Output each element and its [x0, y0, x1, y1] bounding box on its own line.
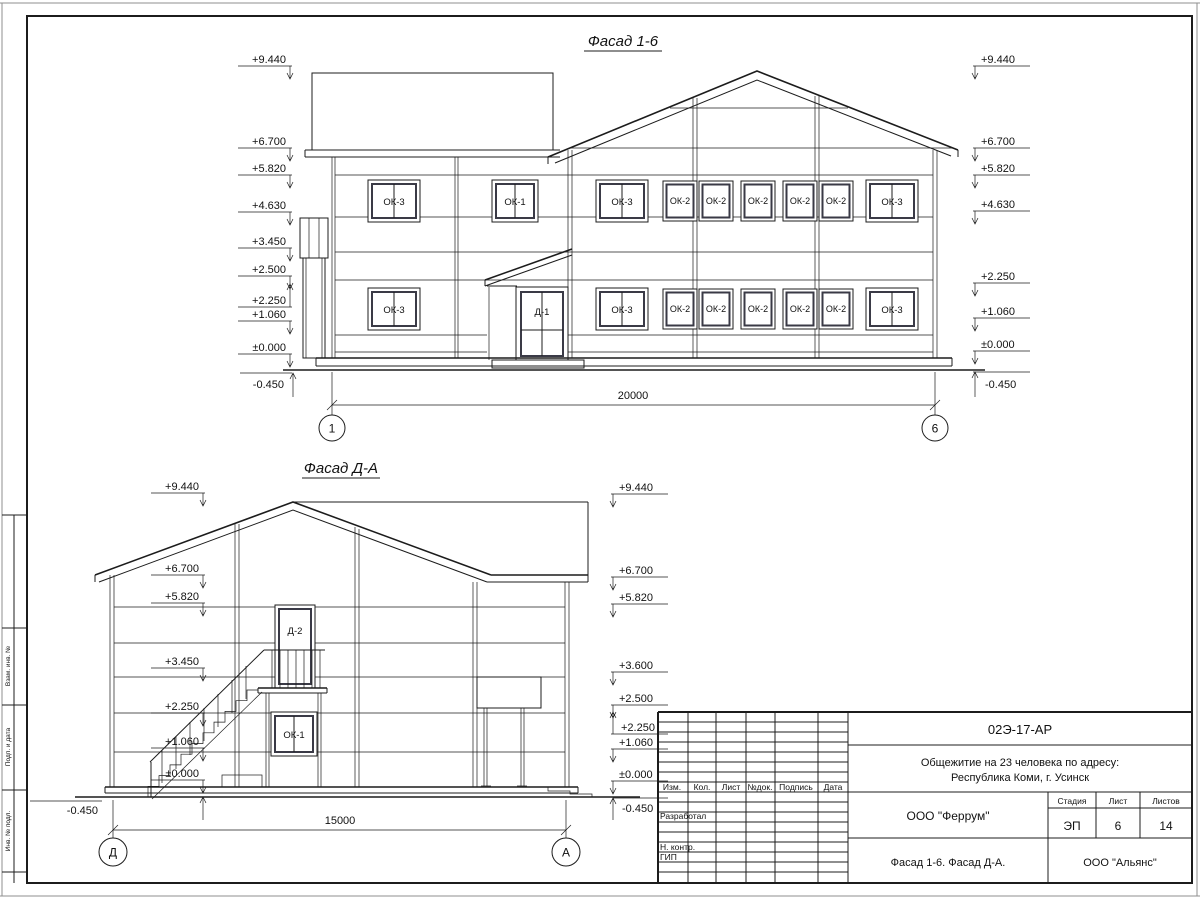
- facade16-dimension: 20000 1 6: [319, 372, 948, 441]
- drawing-sheet: Взам. инв. № Подп. и дата Инв. № подл. Ф…: [0, 0, 1200, 900]
- svg-text:+3.450: +3.450: [252, 236, 286, 248]
- stamp-col-kol: Кол.: [694, 782, 711, 792]
- elevation-mark: +9.440: [972, 54, 1030, 79]
- stamp-project-line1: Общежитие на 23 человека по адресу:: [921, 757, 1119, 769]
- facadeDA-title-text: Фасад Д-А: [304, 460, 378, 477]
- svg-text:+1.060: +1.060: [981, 306, 1015, 318]
- stamp-sheet-label: Лист: [1109, 796, 1128, 806]
- stamp-contractor: ООО "Альянс": [1083, 857, 1157, 869]
- side-porch-canopy: [477, 677, 541, 786]
- stamp-col-doc: №док.: [748, 782, 773, 792]
- axis-marker: 6: [932, 422, 939, 436]
- elevation-mark: +5.820: [238, 163, 293, 188]
- svg-text:+2.250: +2.250: [981, 271, 1015, 283]
- window-ok2: ОК-2: [699, 289, 733, 329]
- facade16-marks-right: +9.440 +6.700 +5.820 +4.630 +2.250 +1.06…: [972, 54, 1030, 397]
- window-ok3: ОК-3: [866, 180, 918, 222]
- window-ok2: ОК-2: [741, 181, 775, 221]
- svg-text:+6.700: +6.700: [981, 136, 1015, 148]
- window-ok3: ОК-3: [866, 288, 918, 330]
- chimney-shaft: [300, 218, 328, 358]
- stamp-project-line2: Республика Коми, г. Усинск: [951, 772, 1089, 784]
- svg-text:+2.250: +2.250: [165, 701, 199, 713]
- svg-text:±0.000: ±0.000: [619, 769, 653, 781]
- window-ok2: ОК-2: [783, 181, 817, 221]
- elevation-mark: +2.250: [972, 271, 1030, 296]
- elevation-mark: ±0.000: [972, 339, 1030, 364]
- svg-text:+2.500: +2.500: [619, 693, 653, 705]
- stamp-stage-value: ЭП: [1063, 819, 1080, 833]
- elevation-mark: +4.630: [972, 199, 1030, 224]
- svg-text:+9.440: +9.440: [981, 54, 1015, 66]
- facade16-lower-windows: ОК-3 ОК-3 ОК-2 ОК-2 ОК-2 ОК-2 ОК-2 ОК-3: [368, 288, 918, 330]
- svg-text:+5.820: +5.820: [619, 592, 653, 604]
- elevation-mark: +6.700: [610, 565, 668, 590]
- elevation-mark: +5.820: [972, 163, 1030, 188]
- elevation-mark: +1.060: [151, 736, 206, 761]
- axis-marker: 1: [329, 422, 336, 436]
- svg-text:+1.060: +1.060: [165, 736, 199, 748]
- window-label: ОК-3: [383, 197, 404, 208]
- dimension-text: 15000: [325, 815, 356, 827]
- elevation-mark: +2.250: [610, 712, 668, 734]
- elevation-mark: +6.700: [151, 563, 206, 588]
- window-ok2: ОК-2: [819, 181, 853, 221]
- window-ok2: ОК-2: [663, 289, 697, 329]
- title-block: Изм. Кол. Лист №док. Подпись Дата Разраб…: [658, 712, 1192, 883]
- stamp-sheet-value: 6: [1115, 819, 1122, 833]
- facadeDA-dimension: 15000 Д А: [99, 800, 580, 866]
- svg-text:+6.700: +6.700: [619, 565, 653, 577]
- window-ok3: ОК-3: [596, 288, 648, 330]
- facadeDA-marks-right: +9.440 +6.700 +5.820 +3.600 +2.500 +2.25…: [610, 482, 668, 820]
- facade16-upper-windows: ОК-3 ОК-1 ОК-3 ОК-2 ОК-2 ОК-2 ОК-2 ОК-2 …: [368, 180, 918, 222]
- window-label: ОК-3: [881, 197, 902, 208]
- axis-marker: Д: [109, 846, 117, 860]
- window-label: ОК-1: [283, 730, 304, 741]
- stamp-content-title: Фасад 1-6. Фасад Д-А.: [891, 857, 1006, 869]
- elevation-mark: +6.700: [238, 136, 293, 161]
- svg-text:-0.450: -0.450: [253, 379, 284, 391]
- elevation-mark: +9.440: [238, 54, 293, 79]
- stamp-col-list: Лист: [722, 782, 741, 792]
- window-label: ОК-3: [611, 197, 632, 208]
- elevation-mark: +5.820: [151, 591, 206, 616]
- window-ok3: ОК-3: [368, 180, 420, 222]
- svg-text:+3.450: +3.450: [165, 656, 199, 668]
- window-label: ОК-2: [706, 304, 726, 314]
- window-label: ОК-2: [748, 304, 768, 314]
- window-ok3: ОК-3: [596, 180, 648, 222]
- facade16-roofs: [305, 71, 958, 164]
- margin-label-podp: Подп. и дата: [5, 727, 12, 766]
- window-label: ОК-3: [383, 305, 404, 316]
- elevation-mark: +2.500: [610, 693, 668, 718]
- facadeDA-drawing: Д-2 ОК-1: [30, 481, 668, 866]
- svg-text:+6.700: +6.700: [252, 136, 286, 148]
- facade16-title: Фасад 1-6: [584, 33, 662, 51]
- elevation-mark: +1.060: [238, 309, 293, 334]
- elevation-mark: +5.820: [610, 592, 668, 617]
- facade16-marks-left: +9.440 +6.700 +5.820 +4.630 +3.450 +2.50…: [238, 54, 296, 397]
- facade16-title-text: Фасад 1-6: [588, 33, 659, 50]
- window-label: ОК-2: [706, 196, 726, 206]
- svg-text:+3.600: +3.600: [619, 660, 653, 672]
- svg-text:+1.060: +1.060: [252, 309, 286, 321]
- margin-label-inv: Инв. № подл.: [5, 811, 12, 852]
- window-ok2: ОК-2: [663, 181, 697, 221]
- elevation-mark: +1.060: [610, 737, 668, 762]
- window-ok1: ОК-1: [271, 712, 317, 756]
- stamp-sheets-label: Листов: [1152, 796, 1180, 806]
- elevation-mark: +2.500: [238, 264, 293, 289]
- stamp-doc-number: 02Э-17-АР: [988, 722, 1052, 737]
- window-label: ОК-2: [790, 196, 810, 206]
- window-ok2: ОК-2: [783, 289, 817, 329]
- elevation-mark: +9.440: [610, 482, 668, 507]
- svg-text:-0.450: -0.450: [985, 379, 1016, 391]
- svg-text:+5.820: +5.820: [165, 591, 199, 603]
- elevation-mark: +4.630: [238, 200, 293, 225]
- stamp-sheets-value: 14: [1159, 819, 1173, 833]
- facadeDA-title: Фасад Д-А: [302, 460, 380, 478]
- window-label: ОК-2: [670, 304, 690, 314]
- svg-text:+5.820: +5.820: [252, 163, 286, 175]
- elevation-mark: -0.450: [972, 372, 1030, 397]
- svg-text:+6.700: +6.700: [165, 563, 199, 575]
- svg-text:-0.450: -0.450: [622, 803, 653, 815]
- window-label: ОК-3: [881, 305, 902, 316]
- svg-text:+2.250: +2.250: [621, 722, 655, 734]
- svg-text:+4.630: +4.630: [981, 199, 1015, 211]
- window-label: ОК-2: [670, 196, 690, 206]
- svg-text:+9.440: +9.440: [619, 482, 653, 494]
- svg-text:+1.060: +1.060: [619, 737, 653, 749]
- elevation-mark: +9.440: [151, 481, 206, 506]
- svg-text:+4.630: +4.630: [252, 200, 286, 212]
- elevation-mark: ±0.000: [238, 342, 293, 367]
- window-ok2: ОК-2: [741, 289, 775, 329]
- facadeDA-marks-left: +9.440 +6.700 +5.820 +3.450 +2.250 +1.06…: [30, 481, 206, 820]
- axis-marker: А: [562, 846, 570, 860]
- window-label: ОК-2: [826, 196, 846, 206]
- stamp-row-developed: Разработал: [660, 811, 706, 821]
- elevation-mark: +3.450: [238, 236, 293, 261]
- stamp-row-ncontrol: Н. контр.: [660, 842, 695, 852]
- svg-text:+9.440: +9.440: [165, 481, 199, 493]
- stamp-org: ООО "Феррум": [907, 809, 990, 823]
- window-ok2: ОК-2: [819, 289, 853, 329]
- window-label: ОК-2: [748, 196, 768, 206]
- elevation-mark: +2.250: [151, 701, 206, 726]
- svg-text:±0.000: ±0.000: [981, 339, 1015, 351]
- elevation-mark: +1.060: [972, 306, 1030, 331]
- window-label: ОК-2: [790, 304, 810, 314]
- elevation-mark: -0.450: [240, 373, 296, 397]
- svg-text:+2.500: +2.500: [252, 264, 286, 276]
- svg-text:±0.000: ±0.000: [252, 342, 286, 354]
- door-label: Д-2: [288, 626, 303, 637]
- window-ok1: ОК-1: [492, 180, 538, 222]
- elevation-mark: +3.600: [610, 660, 668, 685]
- stamp-col-podpis: Подпись: [779, 782, 813, 792]
- dimension-text: 20000: [618, 390, 649, 402]
- window-label: ОК-1: [504, 197, 525, 208]
- elevation-mark: -0.450: [30, 797, 206, 820]
- facade-drawing-svg: Взам. инв. № Подп. и дата Инв. № подл. Ф…: [0, 0, 1200, 900]
- facadeDA-base: [75, 787, 640, 797]
- svg-text:+9.440: +9.440: [252, 54, 286, 66]
- window-label: ОК-2: [826, 304, 846, 314]
- elevation-mark: +2.250: [238, 284, 293, 307]
- door-label: Д-1: [535, 307, 550, 318]
- stamp-col-izm: Изм.: [663, 782, 681, 792]
- left-margin-table: Взам. инв. № Подп. и дата Инв. № подл.: [2, 515, 27, 883]
- svg-text:+5.820: +5.820: [981, 163, 1015, 175]
- facade16-base: [283, 358, 985, 370]
- svg-text:±0.000: ±0.000: [165, 768, 199, 780]
- stamp-col-data: Дата: [824, 782, 843, 792]
- window-ok2: ОК-2: [699, 181, 733, 221]
- svg-text:-0.450: -0.450: [67, 805, 98, 817]
- elevation-mark: +6.700: [972, 136, 1030, 161]
- stamp-stage-label: Стадия: [1058, 796, 1087, 806]
- entrance-porch: Д-1: [485, 249, 584, 368]
- facade16-drawing: ОК-3 ОК-1 ОК-3 ОК-2 ОК-2 ОК-2 ОК-2 ОК-2 …: [238, 54, 1030, 441]
- window-ok3: ОК-3: [368, 288, 420, 330]
- svg-text:+2.250: +2.250: [252, 295, 286, 307]
- stamp-row-gip: ГИП: [660, 852, 677, 862]
- window-label: ОК-3: [611, 305, 632, 316]
- margin-label-vzam: Взам. инв. №: [5, 646, 12, 686]
- door-d2: Д-2: [275, 605, 315, 688]
